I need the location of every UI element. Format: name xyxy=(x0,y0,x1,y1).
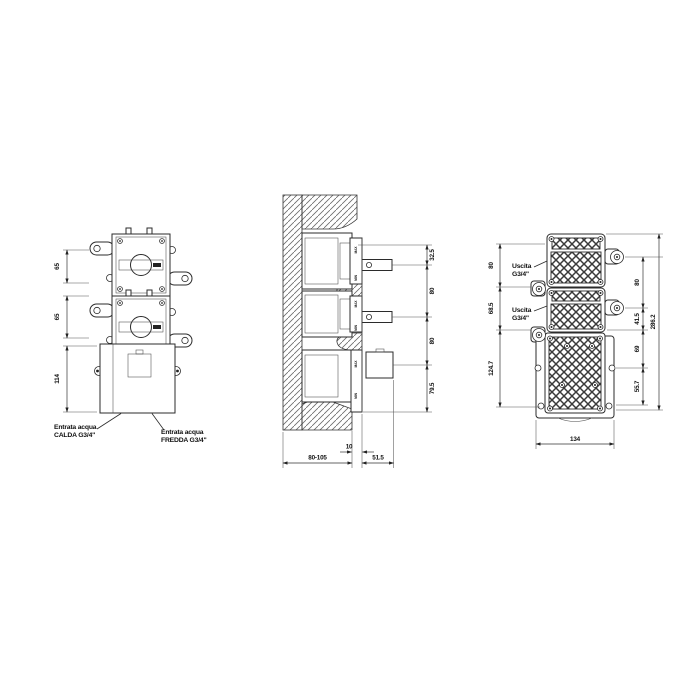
lattice-panel xyxy=(551,304,601,329)
top-post-icon xyxy=(147,228,152,234)
max-marking: MAX xyxy=(354,246,358,254)
leader-line xyxy=(97,414,121,430)
valve-installation-drawing: 65 65 114 Entrata acqua CALDA G3/4" Entr… xyxy=(0,0,700,700)
front-dimensions-left: 65 65 114 xyxy=(54,250,97,412)
min-marking: MIN xyxy=(354,392,358,399)
top-post-icon xyxy=(126,290,131,296)
box-ear-icon xyxy=(609,365,615,371)
section-module-1: MAX MIN xyxy=(302,233,392,289)
lattice-band xyxy=(552,291,600,301)
dim-114: 114 xyxy=(54,374,61,384)
dim-41-5: 41.5 xyxy=(634,313,641,325)
ear-hole-icon xyxy=(182,275,188,281)
min-marking: MIN xyxy=(354,274,358,281)
outlet2-label-line1: Uscita xyxy=(512,307,532,314)
dim-55-7: 55.7 xyxy=(634,380,641,392)
cartridge-icon xyxy=(131,317,152,338)
cold-inlet-label-line1: Entrata acqua xyxy=(161,429,204,436)
index-mark-icon xyxy=(153,325,161,329)
front-thermostat-box xyxy=(95,344,181,413)
dim-79-5: 79.5 xyxy=(429,382,436,394)
leader-line xyxy=(534,306,547,311)
plaster-plate xyxy=(351,350,362,412)
inlet-labels: Entrata acqua CALDA G3/4" Entrata acqua … xyxy=(54,414,207,445)
dim-124-7: 124.7 xyxy=(488,360,495,375)
dim-10: 10 xyxy=(346,444,353,451)
knob-housing xyxy=(366,352,393,378)
outlet2-label-line2: G3/4" xyxy=(512,315,529,322)
dim-286-2: 286.2 xyxy=(650,314,657,329)
back-cover-2 xyxy=(547,288,605,332)
dim-68-5: 68.5 xyxy=(488,302,495,314)
outlet1-label-line1: Uscita xyxy=(512,263,532,270)
box-ear-icon xyxy=(606,403,612,409)
cartridge-icon xyxy=(131,255,152,276)
top-post-icon xyxy=(147,290,152,296)
technical-drawing-page: 65 65 114 Entrata acqua CALDA G3/4" Entr… xyxy=(0,0,700,700)
back-cover-1 xyxy=(547,234,605,287)
side-nub-dot xyxy=(96,370,99,373)
front-valve-module-1 xyxy=(90,228,192,296)
hot-inlet-label-line1: Entrata acqua xyxy=(54,424,97,431)
dim-69: 69 xyxy=(634,345,641,352)
box-bottom-arc xyxy=(558,418,592,422)
back-cover-3 xyxy=(545,333,605,413)
leader-line xyxy=(152,414,164,431)
dim-65-2: 65 xyxy=(54,313,61,320)
box-ear-icon xyxy=(535,365,541,371)
back-dimension-bottom: 134 xyxy=(536,420,614,449)
stem-screw-icon xyxy=(366,314,371,319)
dim-65-1: 65 xyxy=(54,263,61,270)
front-view: 65 65 114 Entrata acqua CALDA G3/4" Entr… xyxy=(54,228,207,444)
dim-134: 134 xyxy=(570,436,581,443)
cold-inlet-label-line2: FREDDA G3/4" xyxy=(161,437,207,444)
outlet1-label-line2: G3/4" xyxy=(512,271,529,278)
ear-hole-icon xyxy=(94,307,100,313)
index-mark-icon xyxy=(153,263,161,267)
dim-80-a: 80 xyxy=(429,287,436,294)
section-view: MAX MIN MAX MIN MAX MIN xyxy=(283,195,436,468)
dim-80-left: 80 xyxy=(488,262,495,269)
box-body xyxy=(100,344,175,413)
side-nub-dot xyxy=(176,370,179,373)
back-view: Uscita G3/4" Uscita G3/4" 80 68.5 124.7 xyxy=(488,234,663,449)
max-marking: MAX xyxy=(354,360,358,368)
box-ear-icon xyxy=(538,403,544,409)
dim-32-5: 32.5 xyxy=(429,249,436,261)
leader-line xyxy=(534,261,547,267)
ear-hole-icon xyxy=(94,245,100,251)
dim-51-5: 51.5 xyxy=(372,455,384,462)
lattice-band xyxy=(552,238,600,249)
lattice-panel xyxy=(551,252,601,283)
ear-hole-icon xyxy=(182,337,188,343)
stem-screw-icon xyxy=(366,262,371,267)
top-post-icon xyxy=(126,228,131,234)
min-marking: MIN xyxy=(354,324,358,331)
max-marking: MAX xyxy=(354,300,358,308)
hot-inlet-label-line2: CALDA G3/4" xyxy=(54,432,95,439)
dim-80-b: 80 xyxy=(429,337,436,344)
dim-80-105: 80-105 xyxy=(308,455,327,462)
dim-80-right: 80 xyxy=(634,279,641,286)
section-module-2: MAX MIN xyxy=(302,291,392,337)
